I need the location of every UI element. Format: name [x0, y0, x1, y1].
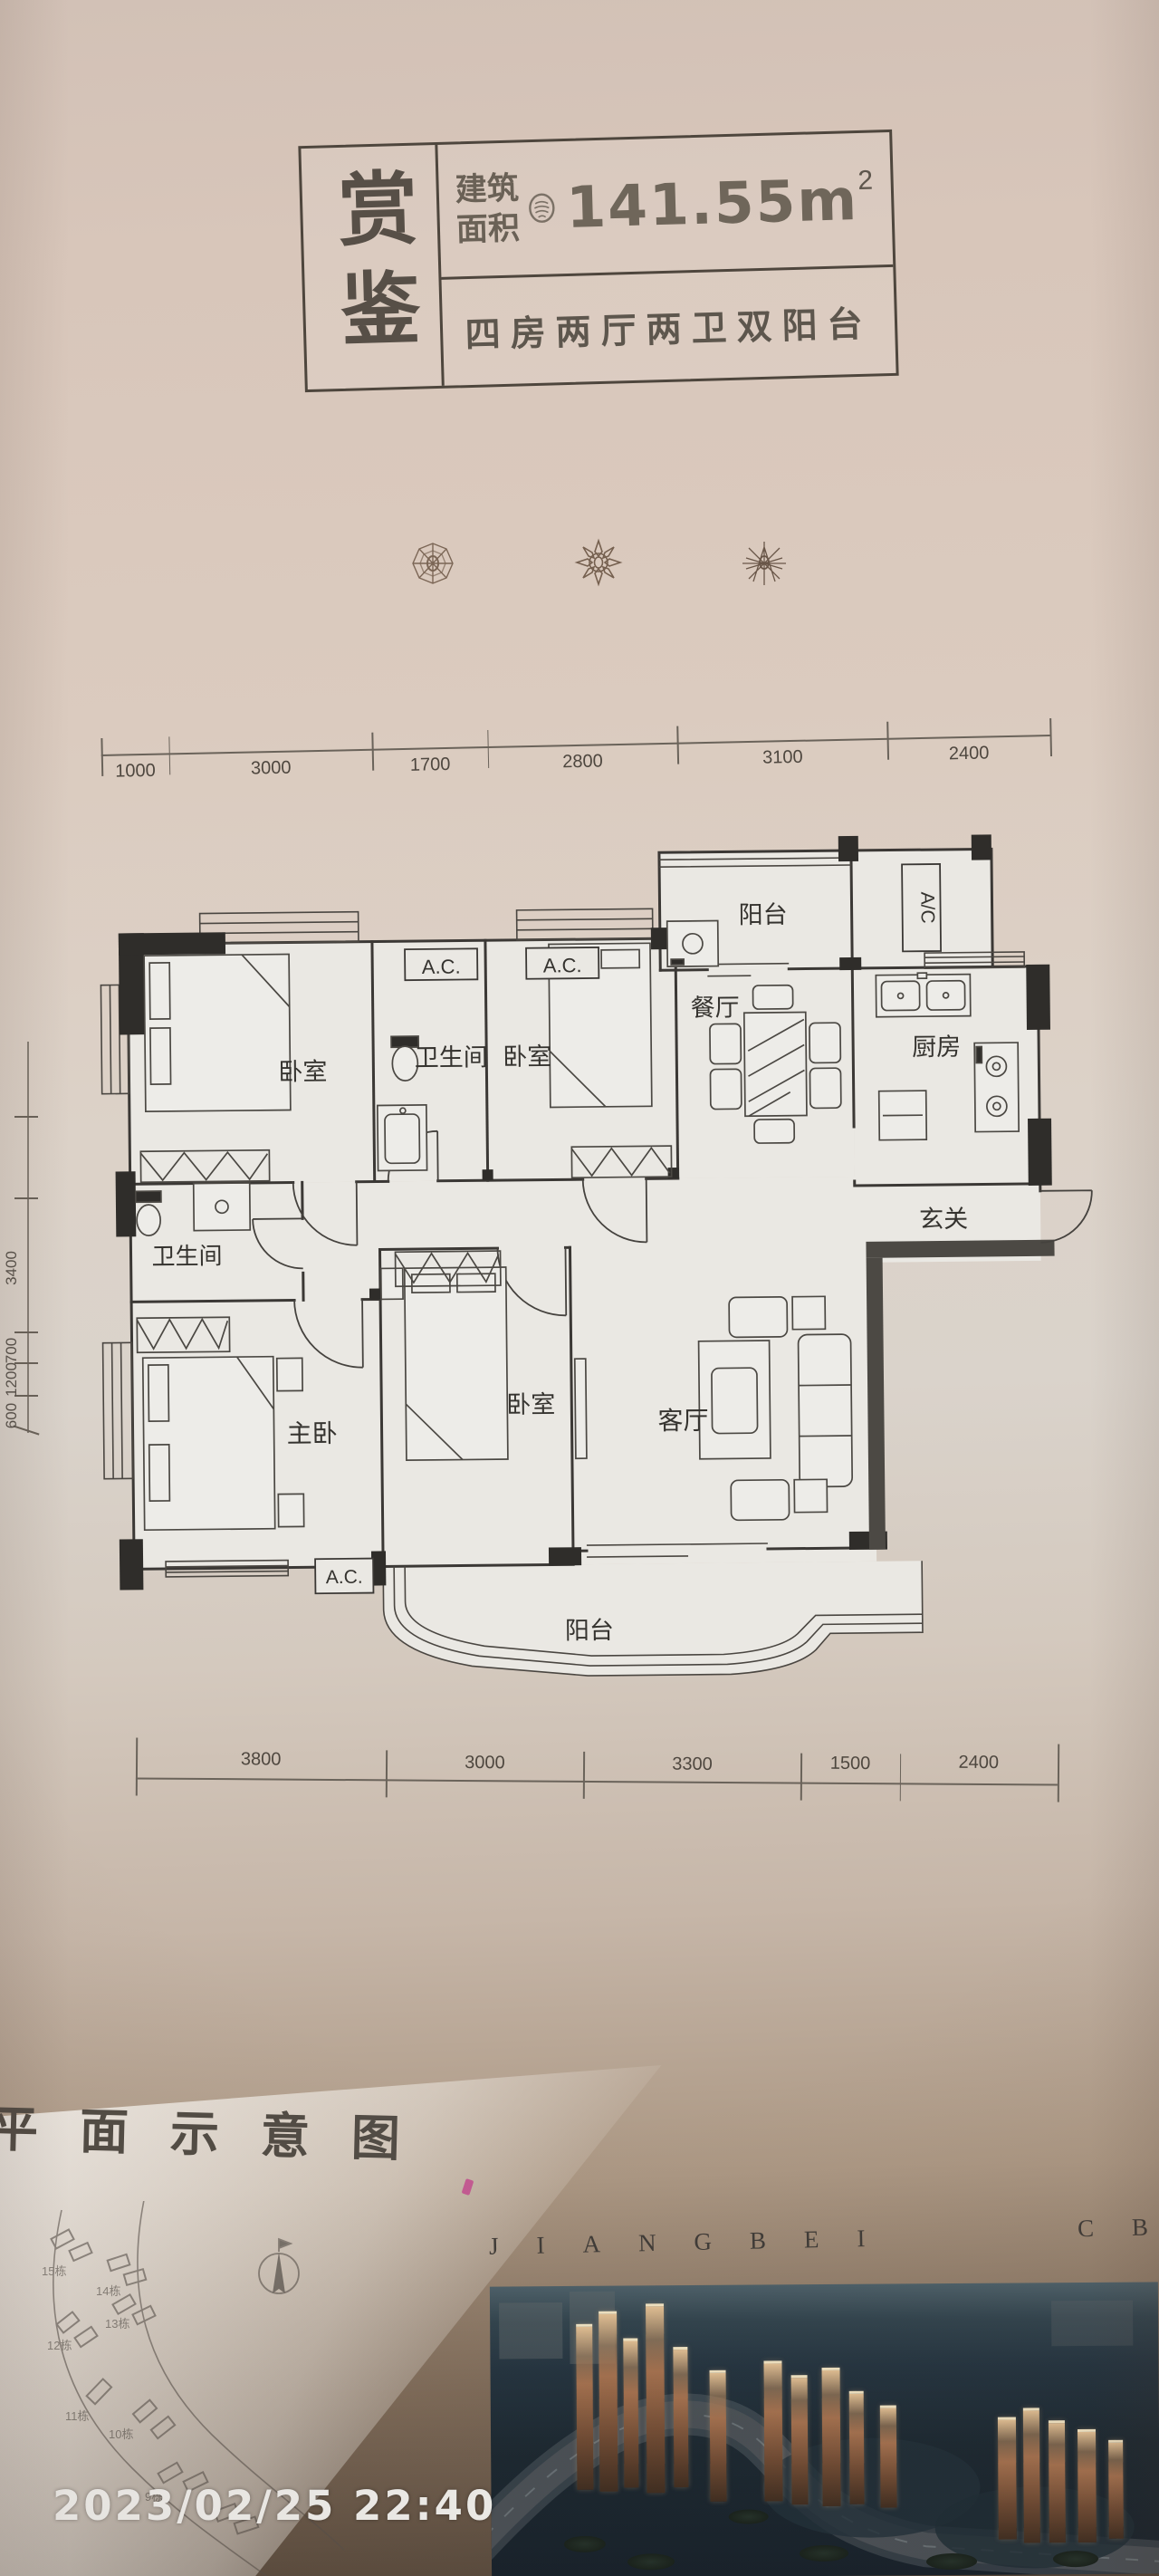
room-label: 餐厅 [691, 994, 740, 1022]
ac-label: A.C. [543, 954, 582, 976]
svg-text:10栋: 10栋 [109, 2427, 133, 2441]
brand-letters-left: JIANGBEI [489, 2224, 904, 2261]
dim-label: 3100 [762, 747, 803, 769]
stove-icon [974, 1043, 1019, 1131]
photographed-floorplan-page: 赏鉴 建筑 面积 141.55m2 四房两厅两卫双阳台 [0, 0, 1159, 2576]
shower-icon [194, 1183, 251, 1231]
svg-text:13栋: 13栋 [105, 2317, 129, 2331]
washbasin-icon [378, 1105, 427, 1171]
page-caption: 平面示意图 [0, 2089, 443, 2171]
dim-label: 1000 [115, 761, 156, 783]
ac-label: A.C. [326, 1567, 363, 1588]
dim-label: 3400 [3, 1251, 21, 1285]
dim-label: 1200 [3, 1362, 21, 1397]
fridge-icon [879, 1091, 927, 1140]
toilet-icon [136, 1191, 162, 1235]
layout-description: 四房两厅两卫双阳台 [442, 267, 896, 386]
area-value: 141.55m [565, 166, 859, 240]
room-label: 玄关 [919, 1206, 968, 1234]
title-block: 赏鉴 建筑 面积 141.55m2 四房两厅两卫双阳台 [298, 130, 898, 392]
room-label: 卫生间 [151, 1242, 222, 1270]
dim-label: 3000 [251, 758, 292, 780]
area-label: 建筑 面积 [455, 169, 520, 250]
camera-timestamp: 2023/02/25 22:40 [53, 2482, 496, 2530]
floor-plan: A.C. A.C. A.C. A/C 卧室 卫生间 卧室 阳台 餐厅 厨房 玄关… [72, 830, 1115, 1755]
bed-icon [144, 954, 291, 1111]
room-label: 卧室 [506, 1390, 555, 1418]
dimension-row-bottom: 3800 3000 3300 1500 2400 [136, 1737, 1058, 1803]
dim-label: 1500 [830, 1754, 871, 1774]
svg-text:14栋: 14栋 [96, 2284, 120, 2298]
area-label-line2: 面积 [455, 208, 520, 250]
starburst-rosette-icon [741, 540, 788, 587]
room-label: 客厅 [657, 1407, 708, 1436]
dim-label: 2400 [958, 1753, 999, 1773]
dim-label: 3300 [672, 1754, 713, 1775]
dim-label: 3800 [241, 1749, 282, 1770]
dim-label: 3000 [465, 1753, 505, 1773]
room-label: 卧室 [503, 1043, 551, 1071]
svg-text:12栋: 12栋 [47, 2339, 72, 2352]
title-side-label: 赏鉴 [311, 166, 432, 368]
entry-door-arc [1040, 1190, 1093, 1243]
octagon-web-rosette-icon [409, 540, 456, 587]
area-superscript: 2 [857, 166, 874, 197]
dim-label: 700 [3, 1338, 21, 1363]
area-row: 建筑 面积 141.55m2 [437, 132, 893, 280]
ac-label: A/C [916, 891, 937, 923]
room-label: 阳台 [565, 1617, 614, 1645]
room-label: 卧室 [278, 1058, 327, 1086]
dimension-row-top: 1000 3000 1700 2800 3100 2400 [101, 720, 1050, 800]
svg-text:15栋: 15栋 [42, 2264, 66, 2278]
compass-icon [259, 2239, 299, 2293]
kitchen-sink-icon [876, 973, 970, 1017]
area-label-line1: 建筑 [455, 169, 519, 211]
dim-label: 2800 [562, 751, 603, 773]
washing-machine-icon [667, 921, 719, 967]
site-building-labels: 15栋 14栋 13栋 12栋 11栋 10栋 9栋 [42, 2264, 163, 2504]
seal-icon [528, 192, 556, 224]
night-render-photo [490, 2282, 1159, 2576]
star-flower-rosette-icon [574, 538, 623, 587]
floor-plan-svg: A.C. A.C. A.C. A/C 卧室 卫生间 卧室 阳台 餐厅 厨房 玄关… [72, 830, 1115, 1755]
room-label: 厨房 [912, 1033, 961, 1062]
dimension-line [136, 1777, 1058, 1785]
dim-label: 2400 [949, 743, 990, 764]
dim-label: 1700 [410, 755, 451, 776]
tv-cabinet-icon [575, 1359, 587, 1458]
room-label: 卫生间 [415, 1043, 488, 1072]
room-label: 主卧 [286, 1419, 337, 1448]
brand-letters-right: CB [1078, 2213, 1159, 2244]
room-label: 阳台 [738, 901, 787, 929]
ac-label: A.C. [422, 956, 461, 978]
svg-text:11栋: 11栋 [65, 2409, 90, 2423]
dim-label: 600 [3, 1403, 21, 1428]
title-side-cell: 赏鉴 [301, 145, 444, 389]
